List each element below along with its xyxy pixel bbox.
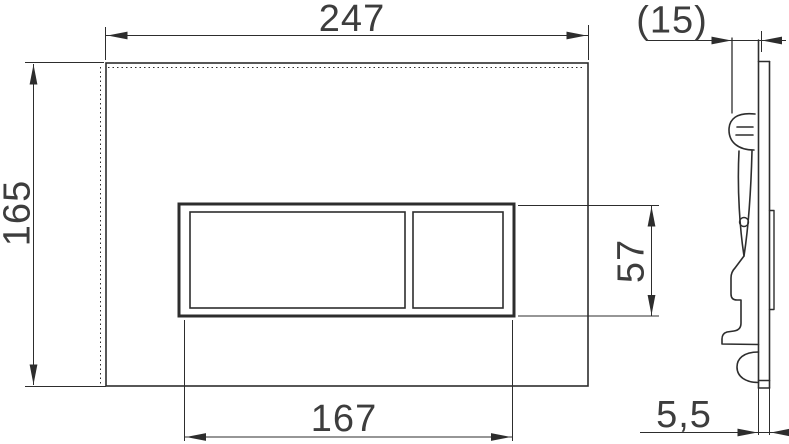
front-view [101, 63, 589, 386]
spring-clip-hook [737, 352, 759, 383]
dim-arrow-down [648, 295, 656, 315]
button-frame [179, 204, 514, 316]
dim-label-outer-width: 247 [319, 0, 385, 40]
dim-arrow-inward-right [712, 37, 732, 45]
technical-drawing-canvas: 247 165 57 167 [0, 0, 789, 444]
spring-clip-hole [740, 218, 749, 227]
dim-label-outer-height: 165 [0, 180, 39, 246]
spring-clip-step [722, 256, 759, 345]
dim-arrow-left [108, 32, 128, 40]
small-flush-button [413, 212, 503, 308]
spring-clip-wedge [738, 151, 752, 256]
dim-label-plate-thickness: 5,5 [656, 394, 712, 436]
dim-arrow-right [567, 32, 587, 40]
dim-arrow-right [491, 433, 511, 441]
dim-arrow-up [30, 65, 38, 85]
flush-plate-drawing: 247 165 57 167 [0, 0, 789, 444]
dim-arrow-left [186, 433, 206, 441]
dim-label-install-depth: (15) [636, 0, 708, 42]
dim-arrow-inward-right [738, 429, 758, 437]
dim-label-opening-height: 57 [611, 239, 653, 283]
plate-bottom-cap [759, 381, 770, 389]
spring-clip-upper [729, 114, 755, 150]
dim-arrow-inward-left [762, 37, 782, 45]
dim-arrow-inward-left [771, 429, 789, 436]
side-view [722, 38, 774, 388]
spring-clip-bars [736, 127, 753, 135]
dim-arrow-down [30, 365, 38, 385]
dim-label-opening-width: 167 [311, 398, 377, 440]
dim-arrow-up [648, 207, 656, 227]
large-flush-button [190, 212, 405, 308]
